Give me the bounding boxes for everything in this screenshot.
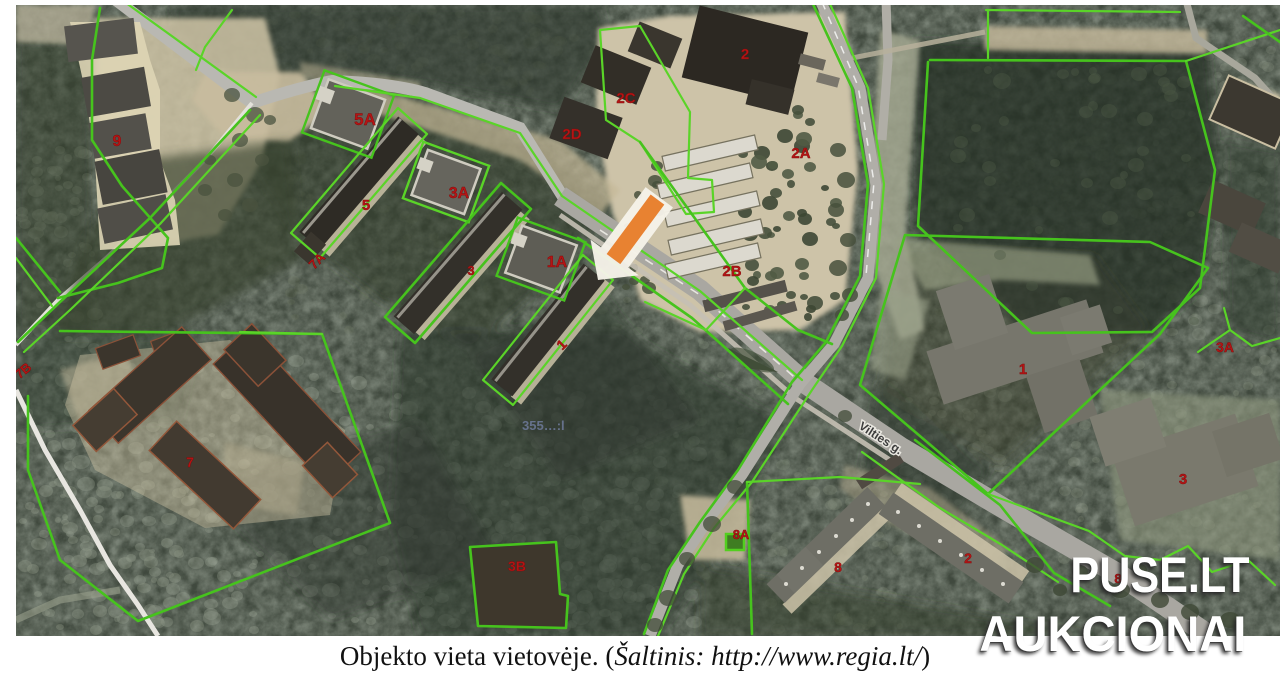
svg-text:3: 3 [1179, 471, 1187, 488]
svg-text:3B: 3B [508, 558, 526, 574]
svg-text:355…:l: 355…:l [522, 418, 565, 433]
svg-text:2B: 2B [722, 263, 741, 280]
svg-text:3: 3 [467, 263, 474, 278]
svg-text:2: 2 [964, 550, 972, 566]
svg-text:5A: 5A [354, 110, 376, 129]
svg-text:8A: 8A [733, 527, 750, 542]
svg-text:3A: 3A [1216, 339, 1234, 355]
svg-text:2A: 2A [791, 145, 810, 162]
svg-text:2C: 2C [616, 90, 635, 107]
svg-text:2D: 2D [562, 126, 581, 143]
svg-text:1: 1 [1019, 361, 1027, 378]
svg-text:3A: 3A [449, 185, 470, 202]
svg-text:8: 8 [834, 559, 842, 575]
svg-text:5: 5 [362, 197, 370, 214]
svg-text:9: 9 [113, 133, 122, 150]
svg-text:2: 2 [741, 46, 749, 63]
svg-text:7: 7 [186, 454, 194, 470]
svg-text:1A: 1A [547, 254, 568, 271]
